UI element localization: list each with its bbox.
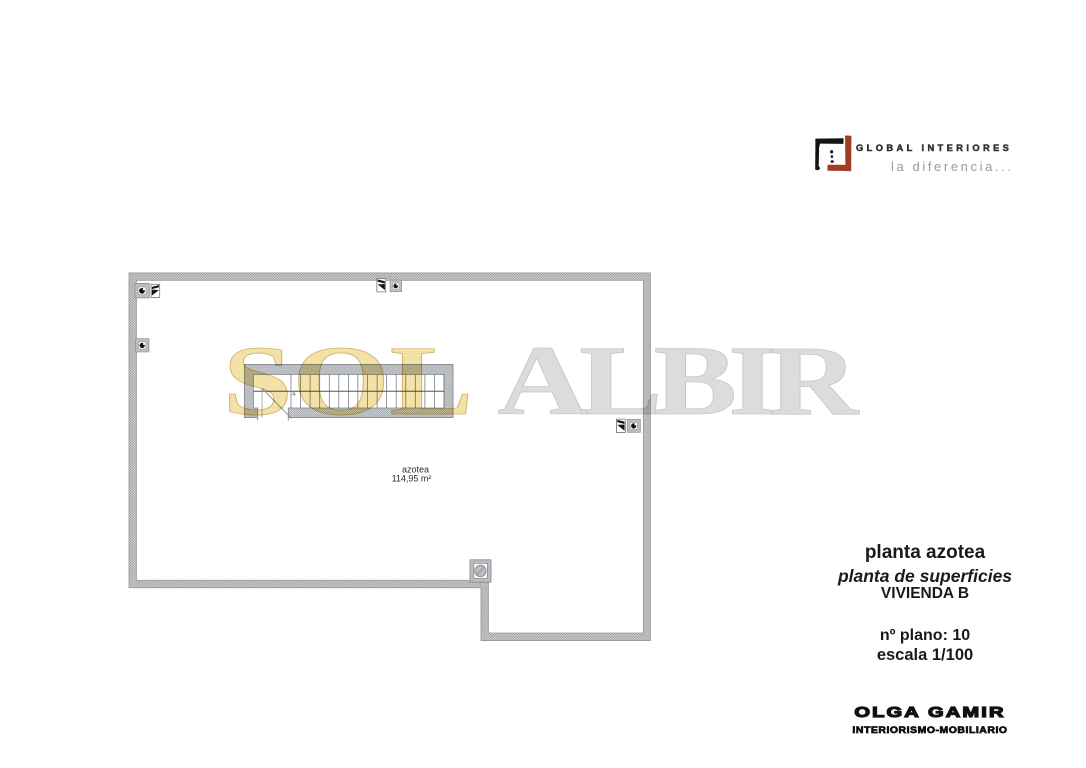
svg-text:114,95 m²: 114,95 m² xyxy=(392,474,432,484)
